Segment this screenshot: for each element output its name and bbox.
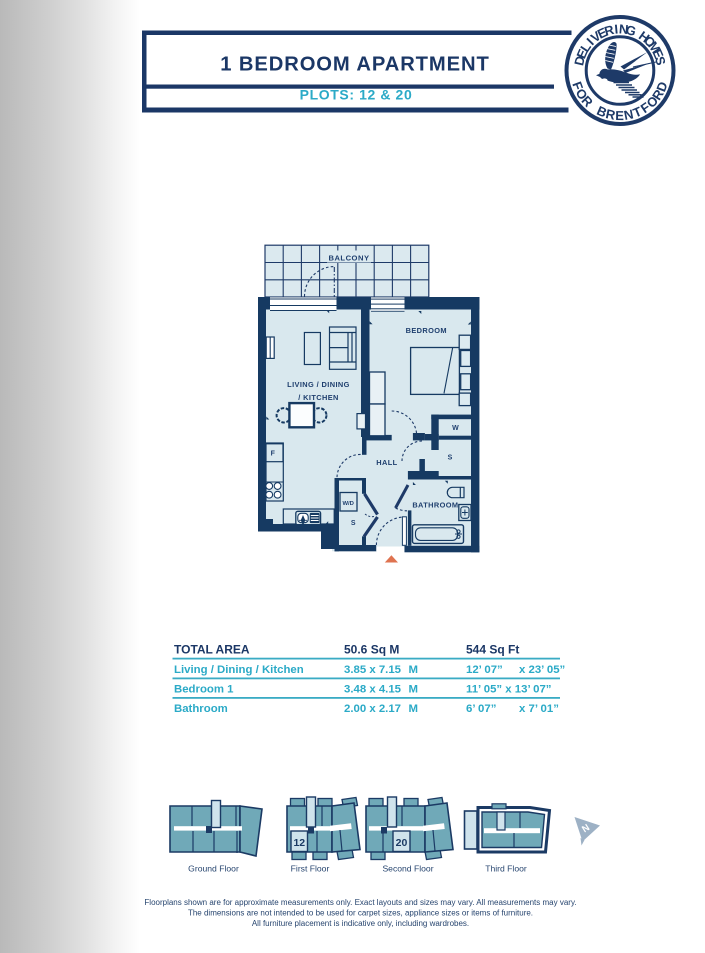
svg-text:S: S bbox=[351, 520, 356, 527]
svg-text:F: F bbox=[271, 451, 276, 458]
svg-text:The dimensions are not intende: The dimensions are not intended to be us… bbox=[188, 909, 533, 918]
svg-text:12: 12 bbox=[293, 837, 305, 849]
svg-text:BEDROOM: BEDROOM bbox=[406, 326, 447, 335]
svg-text:W/D: W/D bbox=[342, 501, 353, 507]
svg-text:20: 20 bbox=[396, 837, 408, 849]
svg-text:2.00 x 2.17: 2.00 x 2.17 bbox=[344, 703, 401, 715]
svg-text:All furniture placement is ind: All furniture placement is indicative on… bbox=[252, 919, 469, 928]
svg-text:BATHROOM: BATHROOM bbox=[412, 500, 458, 509]
svg-text:LIVING / DINING: LIVING / DINING bbox=[287, 380, 350, 389]
svg-text:Bathroom: Bathroom bbox=[174, 703, 228, 715]
svg-text:/ KITCHEN: / KITCHEN bbox=[298, 393, 339, 402]
svg-text:TOTAL AREA: TOTAL AREA bbox=[174, 643, 250, 657]
svg-text:BALCONY: BALCONY bbox=[328, 254, 369, 263]
svg-text:PLOTS: 12 & 20: PLOTS: 12 & 20 bbox=[300, 87, 413, 103]
svg-text:M: M bbox=[409, 684, 419, 696]
svg-text:12’ 07”: 12’ 07” bbox=[466, 664, 503, 676]
svg-text:Floorplans shown are for appro: Floorplans shown are for approximate mea… bbox=[144, 898, 576, 907]
svg-text:3.48 x 4.15: 3.48 x 4.15 bbox=[344, 684, 402, 696]
svg-text:544 Sq Ft: 544 Sq Ft bbox=[466, 643, 519, 657]
svg-text:x 23’ 05”: x 23’ 05” bbox=[519, 664, 565, 676]
svg-text:Ground Floor: Ground Floor bbox=[188, 864, 239, 874]
svg-text:x 7’ 01”: x 7’ 01” bbox=[519, 703, 559, 715]
svg-text:Second Floor: Second Floor bbox=[382, 864, 433, 874]
svg-text:HALL: HALL bbox=[376, 458, 397, 467]
svg-text:Third Floor: Third Floor bbox=[485, 864, 527, 874]
svg-text:50.6 Sq M: 50.6 Sq M bbox=[344, 643, 399, 657]
svg-text:11’ 05” x 13’ 07”: 11’ 05” x 13’ 07” bbox=[466, 684, 552, 696]
svg-text:Living / Dining / Kitchen: Living / Dining / Kitchen bbox=[174, 664, 304, 676]
svg-text:3.85 x 7.15: 3.85 x 7.15 bbox=[344, 664, 402, 676]
svg-text:First Floor: First Floor bbox=[291, 864, 330, 874]
svg-text:M: M bbox=[409, 703, 419, 715]
svg-text:W: W bbox=[452, 425, 459, 432]
svg-text:1 BEDROOM APARTMENT: 1 BEDROOM APARTMENT bbox=[220, 54, 489, 76]
svg-text:S: S bbox=[448, 455, 453, 462]
svg-text:Bedroom 1: Bedroom 1 bbox=[174, 684, 234, 696]
svg-text:6’ 07”: 6’ 07” bbox=[466, 703, 496, 715]
svg-text:M: M bbox=[409, 664, 419, 676]
